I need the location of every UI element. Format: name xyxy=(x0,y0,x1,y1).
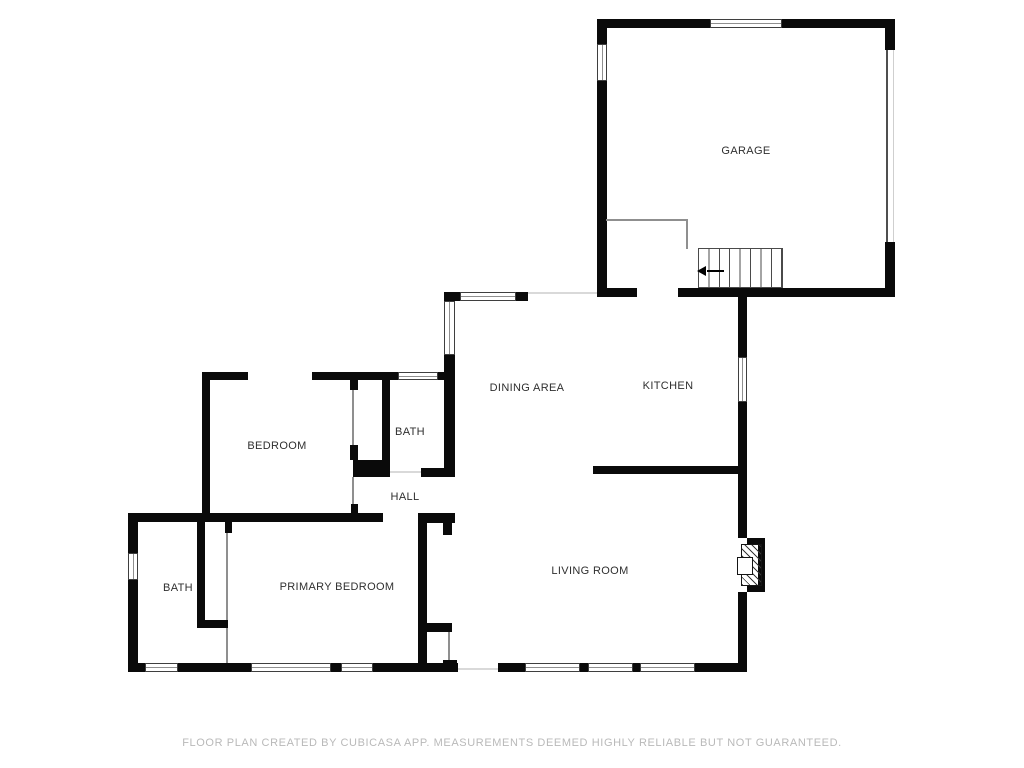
garage-door xyxy=(886,50,894,242)
wall xyxy=(382,380,390,460)
wall xyxy=(128,663,145,672)
window xyxy=(145,663,178,672)
room-label-bedroom: BEDROOM xyxy=(247,440,306,452)
room-label-hall: HALL xyxy=(391,491,420,503)
floor-plan: GARAGE DINING AREA KITCHEN BEDROOM BATH … xyxy=(0,0,1024,768)
closet-door-line xyxy=(352,390,354,445)
wall xyxy=(202,372,210,521)
wall xyxy=(597,81,607,297)
room-label-bath-upper: BATH xyxy=(395,426,425,438)
front-door-opening xyxy=(528,292,597,294)
wall xyxy=(443,523,452,535)
wall xyxy=(418,515,427,672)
wall xyxy=(593,466,742,474)
stairs-direction-arrow-icon xyxy=(707,270,724,272)
wall xyxy=(633,663,640,672)
closet-door-line xyxy=(226,533,228,620)
wall xyxy=(373,663,458,672)
wall xyxy=(225,521,232,533)
landing-line xyxy=(686,219,688,249)
wall xyxy=(128,513,383,522)
window xyxy=(710,19,782,28)
wall xyxy=(516,292,528,301)
wall xyxy=(197,521,205,628)
wall xyxy=(885,19,895,50)
wall xyxy=(128,580,138,672)
footer-disclaimer: FLOOR PLAN CREATED BY CUBICASA APP. MEAS… xyxy=(0,737,1024,749)
window xyxy=(588,663,633,672)
window xyxy=(460,292,516,301)
room-label-dining-area: DINING AREA xyxy=(490,382,565,394)
wall xyxy=(350,445,358,460)
wall xyxy=(351,504,358,513)
window xyxy=(525,663,580,672)
wall xyxy=(597,19,607,44)
wall xyxy=(678,288,895,297)
window xyxy=(398,372,438,380)
room-label-garage: GARAGE xyxy=(721,145,770,157)
window xyxy=(597,44,607,81)
window xyxy=(341,663,373,672)
wall xyxy=(597,288,637,297)
wall xyxy=(353,460,390,477)
landing-line xyxy=(606,219,688,221)
bath-door-opening xyxy=(390,471,421,473)
wall xyxy=(421,468,444,477)
wall xyxy=(747,585,765,592)
wall xyxy=(331,663,341,672)
wall xyxy=(580,663,588,672)
wall xyxy=(312,372,398,380)
bedroom-door-line xyxy=(352,477,354,504)
stairs-direction-arrow-icon xyxy=(697,266,706,276)
window xyxy=(128,553,138,580)
window xyxy=(738,357,747,402)
wall xyxy=(197,620,228,628)
wall xyxy=(350,380,358,390)
window xyxy=(640,663,695,672)
wall xyxy=(418,623,452,632)
wall xyxy=(444,292,460,301)
wall xyxy=(738,297,747,357)
window xyxy=(444,301,455,355)
wall xyxy=(498,663,525,672)
closet-door-line xyxy=(226,628,228,663)
fireplace-firebox xyxy=(737,557,753,575)
wall xyxy=(438,372,448,380)
wall xyxy=(738,592,747,663)
wall xyxy=(178,663,251,672)
room-label-bath-lower: BATH xyxy=(163,582,193,594)
wall xyxy=(128,513,138,553)
staircase xyxy=(698,248,783,288)
room-label-kitchen: KITCHEN xyxy=(643,380,694,392)
room-label-primary-bedroom: PRIMARY BEDROOM xyxy=(280,581,395,593)
window xyxy=(251,663,331,672)
closet-door-line xyxy=(448,632,450,663)
room-label-living-room: LIVING ROOM xyxy=(551,565,628,577)
wall xyxy=(695,663,747,672)
patio-door-opening xyxy=(458,668,498,670)
